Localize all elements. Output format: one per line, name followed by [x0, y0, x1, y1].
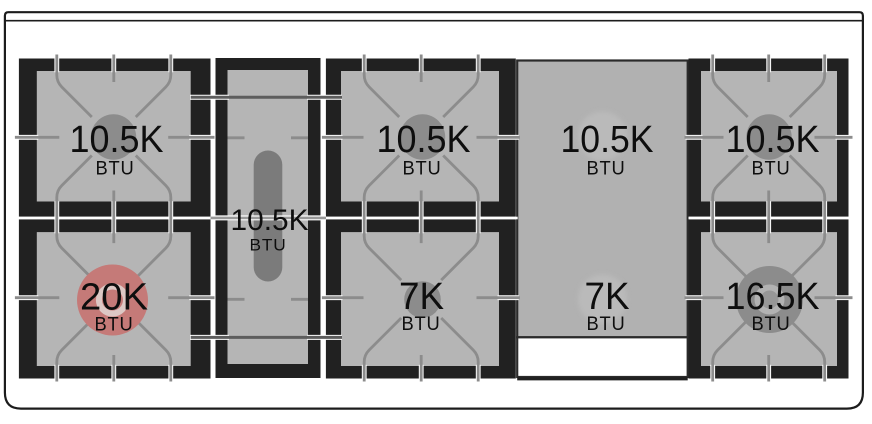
svg-text:7K: 7K — [585, 276, 630, 318]
svg-text:BTU: BTU — [96, 158, 135, 179]
svg-text:BTU: BTU — [752, 314, 791, 335]
svg-text:10.5K: 10.5K — [561, 119, 654, 161]
svg-text:7K: 7K — [399, 276, 444, 318]
svg-text:20K: 20K — [80, 277, 148, 319]
svg-text:BTU: BTU — [95, 315, 134, 336]
svg-text:16.5K: 16.5K — [726, 276, 820, 318]
svg-text:10.5K: 10.5K — [726, 119, 820, 161]
svg-text:BTU: BTU — [587, 314, 626, 335]
svg-text:10.5K: 10.5K — [70, 119, 164, 161]
svg-text:BTU: BTU — [250, 236, 287, 255]
svg-text:BTU: BTU — [402, 314, 441, 335]
svg-text:10.5K: 10.5K — [377, 119, 471, 161]
svg-text:10.5K: 10.5K — [231, 204, 309, 237]
svg-text:BTU: BTU — [403, 158, 442, 179]
svg-text:BTU: BTU — [587, 158, 626, 179]
svg-text:BTU: BTU — [752, 158, 791, 179]
